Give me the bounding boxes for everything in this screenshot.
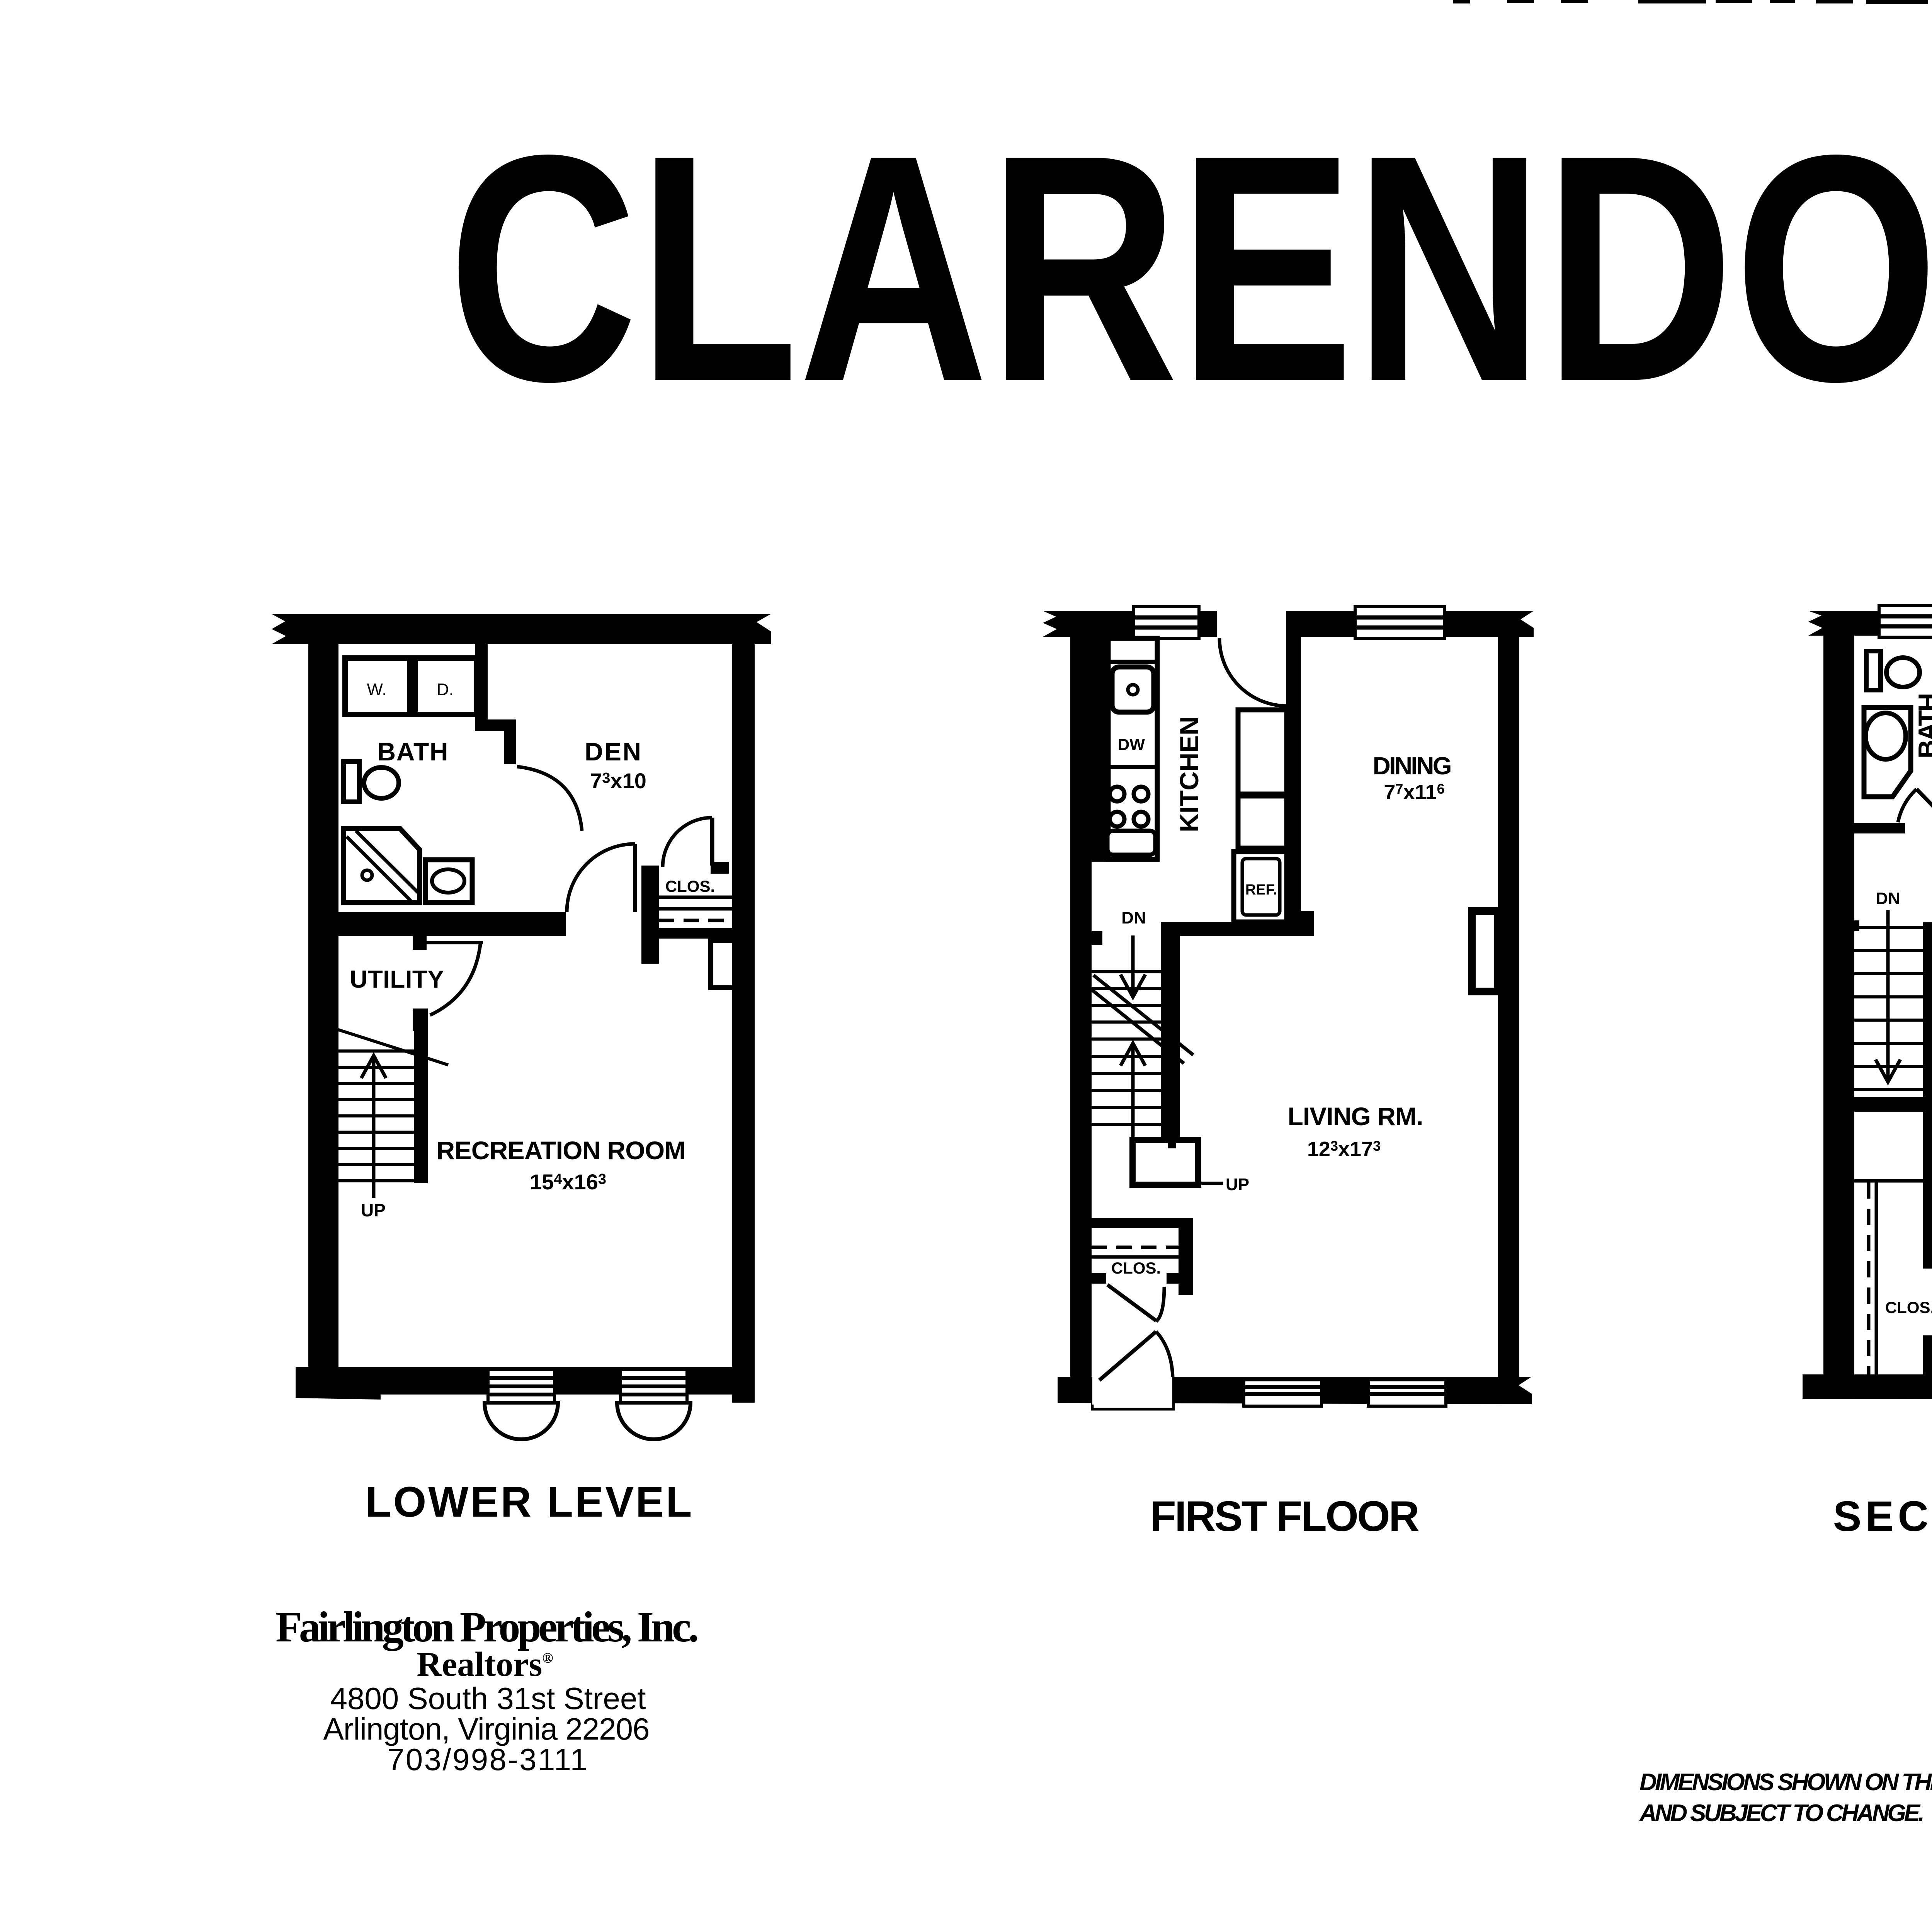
svg-text:DW: DW: [1118, 735, 1145, 753]
svg-text:Realtors®: Realtors®: [417, 1645, 553, 1684]
svg-text:Arlington, Virginia 22206: Arlington, Virginia 22206: [323, 1712, 650, 1746]
svg-text:D.: D.: [437, 680, 454, 699]
svg-text:Fairlington Properties, Inc.: Fairlington Properties, Inc.: [276, 1603, 699, 1651]
svg-text:CLARENDON: CLARENDON: [448, 88, 1932, 448]
svg-text:DEN: DEN: [585, 737, 641, 766]
svg-text:DINING: DINING: [1373, 752, 1452, 780]
svg-text:CLOS.: CLOS.: [1885, 1298, 1932, 1316]
svg-text:UP: UP: [1226, 1175, 1249, 1194]
svg-text:AND SUBJECT TO CHANGE.: AND SUBJECT TO CHANGE.: [1639, 1800, 1925, 1827]
svg-text:UTILITY: UTILITY: [350, 965, 444, 993]
svg-text:77x116: 77x116: [1384, 781, 1444, 804]
svg-text:SECOND FLOOR: SECOND FLOOR: [1833, 1493, 1932, 1540]
svg-text:CLOS.: CLOS.: [665, 877, 715, 895]
svg-text:FIRST FLOOR: FIRST FLOOR: [1150, 1493, 1420, 1540]
svg-text:DN: DN: [1876, 889, 1900, 908]
svg-text:LOWER LEVEL: LOWER LEVEL: [366, 1478, 692, 1526]
svg-text:REF.: REF.: [1245, 882, 1277, 898]
svg-text:BATH: BATH: [378, 737, 448, 766]
svg-text:RECREATION ROOM: RECREATION ROOM: [437, 1136, 686, 1165]
svg-text:154x163: 154x163: [530, 1170, 606, 1194]
svg-text:CLOS.: CLOS.: [1111, 1259, 1161, 1277]
svg-text:W.: W.: [367, 680, 386, 699]
svg-text:LIVING RM.: LIVING RM.: [1288, 1102, 1423, 1131]
svg-text:UP: UP: [361, 1200, 386, 1220]
svg-text:DN: DN: [1121, 908, 1146, 927]
svg-text:73x10: 73x10: [590, 769, 646, 793]
svg-text:123x173: 123x173: [1307, 1138, 1381, 1161]
svg-text:KITCHEN: KITCHEN: [1175, 716, 1204, 832]
svg-text:4800 South 31st Street: 4800 South 31st Street: [330, 1681, 646, 1716]
svg-text:703/998-3111: 703/998-3111: [387, 1742, 587, 1777]
svg-text:DIMENSIONS SHOWN ON THESE FLOO: DIMENSIONS SHOWN ON THESE FLOOR PLANS AR…: [1639, 1769, 1932, 1796]
svg-text:BATH: BATH: [1913, 693, 1932, 759]
